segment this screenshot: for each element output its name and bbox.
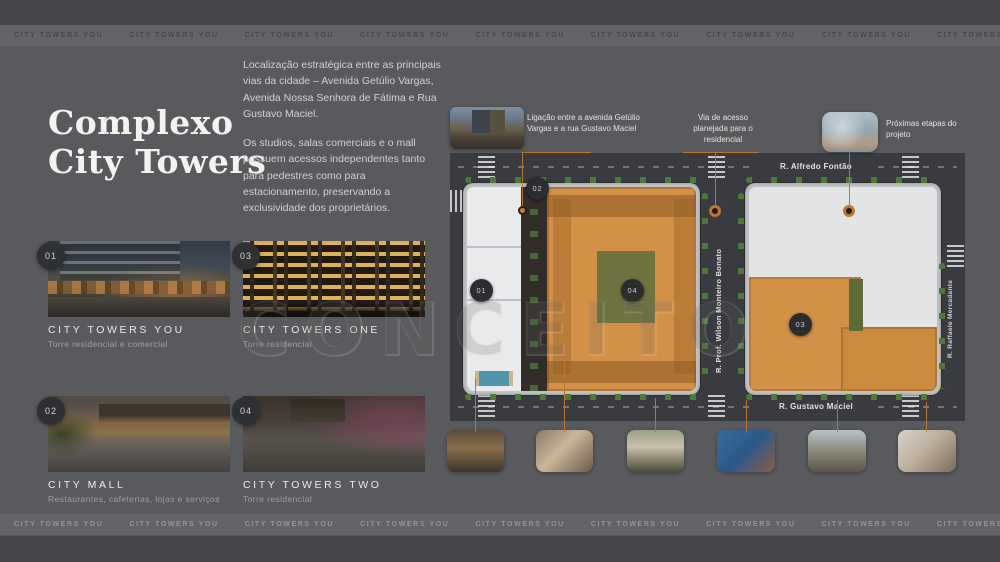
lifestyle-photo-woman-blue <box>717 430 775 472</box>
number-badge: 01 <box>37 242 65 270</box>
street-label-alfredo-fontao: R. Alfredo Fontão <box>758 161 874 172</box>
annotation-next-phases: Próximas etapas do projeto <box>886 118 968 140</box>
band-text-item: CITY TOWERS YOU <box>706 32 795 39</box>
band-text-item: CITY TOWERS YOU <box>129 521 218 528</box>
project-card-city-mall: 02 CITY MALL Restaurantes, cafeterias, l… <box>48 396 230 504</box>
lifestyle-photo-couple-dog <box>808 430 866 472</box>
lifestyle-photo-salon <box>898 430 956 472</box>
project-card-city-towers-two: 04 CITY TOWERS TWO Torre residencial <box>243 396 425 504</box>
trees <box>465 177 698 183</box>
title-line1: Complexo <box>48 104 266 143</box>
city-mall-photo <box>48 396 230 472</box>
annotation-access-bracket <box>683 152 759 153</box>
crosswalk <box>708 156 725 180</box>
band-text-item: CITY TOWERS YOU <box>14 32 103 39</box>
band-text-item: CITY TOWERS YOU <box>360 32 449 39</box>
street-label-raffaele-mercadante: R. Raffaele Mercadante <box>947 251 954 387</box>
lifestyle-photo-market <box>447 430 504 472</box>
band-text-item: CITY TOWERS YOU <box>129 32 218 39</box>
band-text-item: CITY TOWERS YOU <box>822 521 911 528</box>
annotation-link-line <box>522 152 523 206</box>
trees <box>939 263 945 389</box>
next-phases-marker <box>843 205 855 217</box>
title-line2: City Towers <box>48 143 266 182</box>
presentation-slide: CITY TOWERS YOUCITY TOWERS YOUCITY TOWER… <box>0 0 1000 562</box>
access-point-marker <box>709 205 721 217</box>
map-marker-03: 03 <box>789 313 812 336</box>
trees <box>746 177 940 183</box>
band-text-item: CITY TOWERS YOU <box>245 521 334 528</box>
trees <box>702 193 708 389</box>
trees <box>746 394 940 400</box>
map-marker-04: 04 <box>621 279 644 302</box>
bottom-repeat-band: CITY TOWERS YOUCITY TOWERS YOUCITY TOWER… <box>0 514 1000 535</box>
intro-text: Localização estratégica entre as princip… <box>243 57 445 229</box>
band-text-item: CITY TOWERS YOU <box>822 32 911 39</box>
lifestyle-connector <box>475 378 476 432</box>
trees <box>738 193 744 389</box>
number-badge: 03 <box>232 242 260 270</box>
project-name: CITY TOWERS YOU <box>48 324 230 336</box>
project-name: CITY TOWERS ONE <box>243 324 425 336</box>
project-subtitle: Torre residencial <box>243 494 425 504</box>
band-text-item: CITY TOWERS YOU <box>475 32 564 39</box>
annotation-link-bracket <box>522 152 591 153</box>
next-phases-line <box>849 150 850 205</box>
lifestyle-connector <box>564 342 565 432</box>
city-block-left-inner <box>467 187 696 391</box>
lifestyle-connector <box>926 402 927 432</box>
project-subtitle: Torre residencial e comercial <box>48 339 230 349</box>
top-dark-strip <box>0 0 1000 25</box>
band-text-item: CITY TOWERS YOU <box>937 32 1000 39</box>
project-card-city-towers-one: 03 CITY TOWERS ONE Torre residencial <box>243 241 425 349</box>
city-block-right-inner <box>749 187 937 391</box>
map-marker-01: 01 <box>470 279 493 302</box>
building-thumb-photo <box>450 107 524 149</box>
city-towers-two-photo <box>243 396 425 472</box>
internal-alley <box>521 187 547 391</box>
family-thumb-photo <box>822 112 878 152</box>
city-towers-one-photo <box>243 241 425 317</box>
band-text-item: CITY TOWERS YOU <box>475 521 564 528</box>
number-badge: 02 <box>37 397 65 425</box>
map-marker-02: 02 <box>526 177 549 200</box>
intro-paragraph-1: Localização estratégica entre as princip… <box>243 57 445 122</box>
intro-paragraph-2: Os studios, salas comerciais e o mall po… <box>243 135 445 216</box>
project-subtitle: Restaurantes, cafeterias, lojas e serviç… <box>48 494 230 504</box>
site-map: R. Alfredo Fontão R. Gustavo Maciel R. P… <box>450 153 965 421</box>
annotation-access-line <box>715 152 716 205</box>
green-court <box>849 279 863 331</box>
annotation-link: Ligação entre a avenida Getúlio Vargas e… <box>527 112 643 134</box>
city-block-left <box>463 183 700 395</box>
street-label-wilson-monteiro-bonato: R. Prof. Wilson Monteiro Bonato <box>714 225 723 397</box>
band-text-item: CITY TOWERS YOU <box>591 32 680 39</box>
crosswalk <box>450 190 463 212</box>
project-card-city-towers-you: 01 CITY TOWERS YOU Torre residencial e c… <box>48 241 230 349</box>
lifestyle-connector <box>655 398 656 432</box>
lifestyle-photo-cafe-couple <box>536 430 593 472</box>
street-label-gustavo-maciel: R. Gustavo Maciel <box>758 401 874 412</box>
link-point-marker <box>518 206 527 215</box>
top-repeat-band: CITY TOWERS YOUCITY TOWERS YOUCITY TOWER… <box>0 25 1000 46</box>
project-name: CITY MALL <box>48 479 230 491</box>
orange-building-b <box>841 327 937 391</box>
project-subtitle: Torre residencial <box>243 339 425 349</box>
lifestyle-connector <box>746 400 747 432</box>
page-title: Complexo City Towers <box>48 104 266 182</box>
lifestyle-connector <box>837 400 838 432</box>
number-badge: 04 <box>232 397 260 425</box>
band-text-item: CITY TOWERS YOU <box>245 32 334 39</box>
lifestyle-photo-stroller <box>627 430 684 472</box>
band-text-item: CITY TOWERS YOU <box>937 521 1000 528</box>
project-name: CITY TOWERS TWO <box>243 479 425 491</box>
band-text-item: CITY TOWERS YOU <box>706 521 795 528</box>
crosswalk <box>708 395 725 419</box>
trees <box>465 394 698 400</box>
band-text-item: CITY TOWERS YOU <box>591 521 680 528</box>
city-towers-you-photo <box>48 241 230 317</box>
bottom-dark-strip <box>0 536 1000 562</box>
annotation-access: Via de acesso planejada para o residenci… <box>683 112 763 146</box>
band-text-item: CITY TOWERS YOU <box>360 521 449 528</box>
city-block-right <box>745 183 941 395</box>
band-text-item: CITY TOWERS YOU <box>14 521 103 528</box>
